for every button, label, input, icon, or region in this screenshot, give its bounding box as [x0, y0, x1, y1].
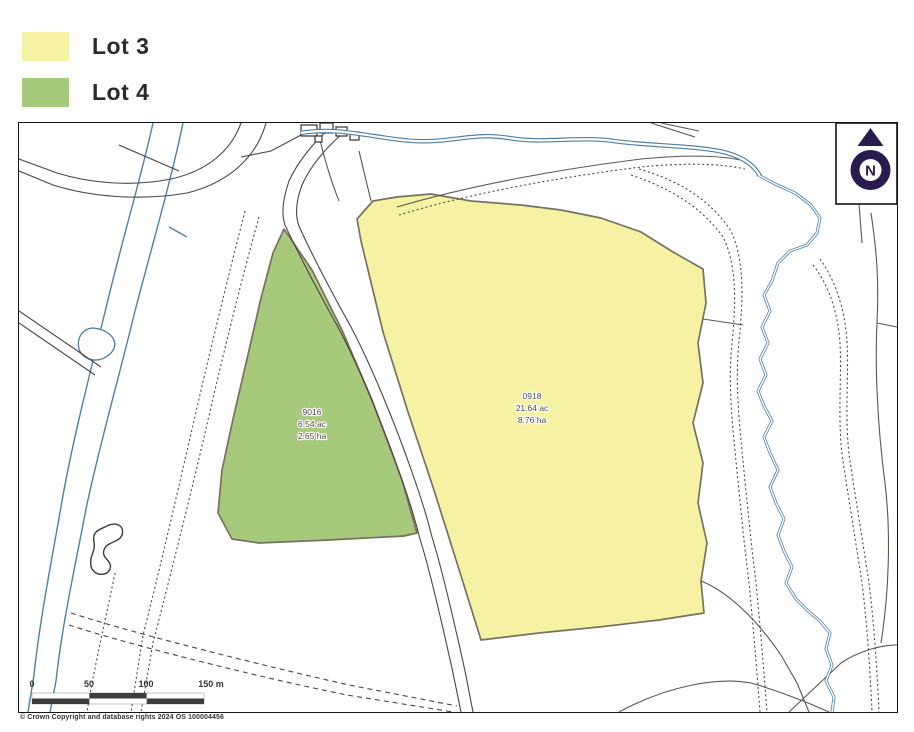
- lot3-acres: 21.64 ac: [516, 403, 549, 413]
- stream-right: [758, 176, 834, 712]
- lot4-parcel-id: 9016: [303, 407, 322, 417]
- enclosure-wiggle: [91, 524, 123, 574]
- scale-label-100: 100: [138, 679, 153, 689]
- lot4-color-swatch: [22, 78, 69, 107]
- lot3-hectares: 8.76 ha: [518, 415, 547, 425]
- scale-label-50: 50: [84, 679, 94, 689]
- copyright-notice: © Crown Copyright and database rights 20…: [20, 714, 224, 721]
- lot3-color-swatch: [22, 32, 69, 61]
- legend-label-lot3: Lot 3: [92, 33, 149, 60]
- scale-label-150m: 150 m: [198, 679, 224, 689]
- lot3-parcel-id: 0918: [523, 391, 542, 401]
- map-frame: 0918 21.64 ac 8.76 ha 9016 6.54 ac 2.65 …: [18, 122, 898, 713]
- stream-top: [301, 131, 760, 176]
- lot4-acres: 6.54 ac: [298, 419, 327, 429]
- compass-box: N: [836, 123, 897, 204]
- scale-bar: 0 50 100 150 m: [29, 679, 223, 704]
- legend-label-lot4: Lot 4: [92, 79, 149, 106]
- legend-item-lot4: Lot 4: [22, 78, 149, 107]
- compass-n-letter: N: [865, 163, 876, 180]
- map-canvas: 0918 21.64 ac 8.76 ha 9016 6.54 ac 2.65 …: [19, 123, 897, 712]
- lot4-hectares: 2.65 ha: [298, 431, 327, 441]
- scale-label-0: 0: [29, 679, 34, 689]
- legend-item-lot3: Lot 3: [22, 32, 149, 61]
